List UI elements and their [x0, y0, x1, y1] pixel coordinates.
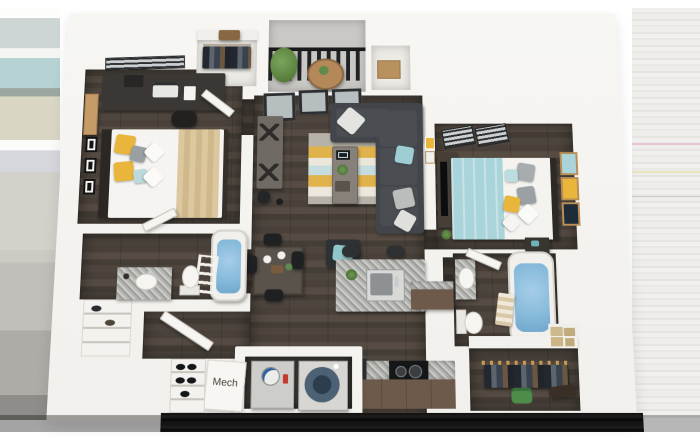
- folded-towel: [564, 328, 576, 336]
- tray: [335, 181, 350, 192]
- teal-duvet: [451, 158, 505, 240]
- teal-pillow: [505, 169, 518, 182]
- sofa-cushion: [379, 111, 417, 147]
- notepad: [184, 86, 196, 100]
- sink-bowl: [370, 273, 392, 295]
- bathtub-water: [216, 240, 242, 294]
- green-vase: [285, 263, 292, 270]
- front-edge-band: [160, 413, 644, 432]
- closet1-hanging-clothes: [202, 47, 251, 69]
- bed-2: [451, 158, 559, 240]
- picture-frame: [84, 158, 97, 173]
- closet2-hanging-clothes: [484, 365, 569, 388]
- doorway-bedroom1: [242, 99, 254, 135]
- folded-towel: [550, 327, 563, 336]
- picture-frame: [83, 179, 96, 194]
- cardboard-box: [377, 60, 400, 78]
- mech-room-label: Mech: [206, 361, 245, 391]
- nightstand-teal-item: [531, 240, 539, 246]
- heater-red-switch: [283, 374, 288, 383]
- tv: [440, 162, 448, 216]
- dryer-button: [334, 364, 339, 369]
- floorplan-stage: Mech: [0, 0, 700, 437]
- front-edge-band-fade-right: [643, 415, 700, 432]
- serving-tray: [271, 265, 283, 273]
- linen-closet: [81, 299, 133, 356]
- bed-1: [98, 129, 228, 218]
- bedroom1-window-blinds: [105, 55, 185, 71]
- teal-pillow: [394, 145, 414, 165]
- console-x-leg: [259, 124, 279, 141]
- yellow-pillow: [113, 161, 134, 182]
- faucet: [395, 276, 399, 287]
- doorway-bedroom2: [424, 230, 436, 250]
- window-pane: [299, 89, 329, 114]
- coffee-table-plant: [337, 165, 348, 176]
- tan-throw: [176, 129, 220, 218]
- tablet: [336, 150, 350, 160]
- wall-art-frame: [560, 152, 579, 175]
- dryer-door-inner: [313, 375, 332, 394]
- toilet-bowl: [464, 312, 483, 334]
- shelf-box: [551, 337, 564, 346]
- brown-counter-top: [411, 281, 454, 289]
- wall-art-frame: [561, 177, 580, 200]
- gray-pillow: [392, 187, 416, 210]
- plate: [263, 255, 271, 263]
- shelf-box: [565, 338, 575, 346]
- gray-pillow: [516, 162, 536, 182]
- burner: [395, 366, 406, 377]
- rolled-towels: [495, 292, 515, 326]
- picture-frame: [85, 137, 98, 152]
- console-x-leg: [259, 164, 279, 181]
- counter-granite: [366, 361, 389, 380]
- wall-art-frame: [425, 137, 435, 149]
- desk-chair: [171, 111, 197, 128]
- front-edge-band-fade-left: [0, 415, 161, 432]
- floorplan-render: Mech: [0, 7, 700, 435]
- plate: [277, 251, 285, 259]
- printer: [124, 75, 144, 87]
- dresser-plant: [441, 230, 451, 240]
- brown-counter: [411, 281, 454, 309]
- bar-stool: [342, 245, 360, 257]
- vanity-sink: [458, 267, 475, 289]
- wall-art-frame: [562, 202, 581, 225]
- wall-art-frame: [425, 151, 435, 163]
- bathtub-water: [514, 263, 551, 332]
- counter-granite: [428, 361, 455, 380]
- bar-stool: [386, 245, 404, 257]
- laptop: [152, 82, 178, 97]
- table-plant: [319, 66, 329, 75]
- floor-lamp-base: [276, 198, 283, 205]
- corkboard: [83, 94, 99, 135]
- green-bag: [511, 388, 532, 404]
- suitcase: [219, 30, 240, 40]
- dining-chair: [291, 251, 303, 269]
- dining-chair: [263, 234, 281, 246]
- burner: [409, 365, 423, 378]
- mech-door: Mech: [203, 359, 247, 412]
- dining-chair: [265, 289, 283, 301]
- island-plant: [346, 269, 357, 280]
